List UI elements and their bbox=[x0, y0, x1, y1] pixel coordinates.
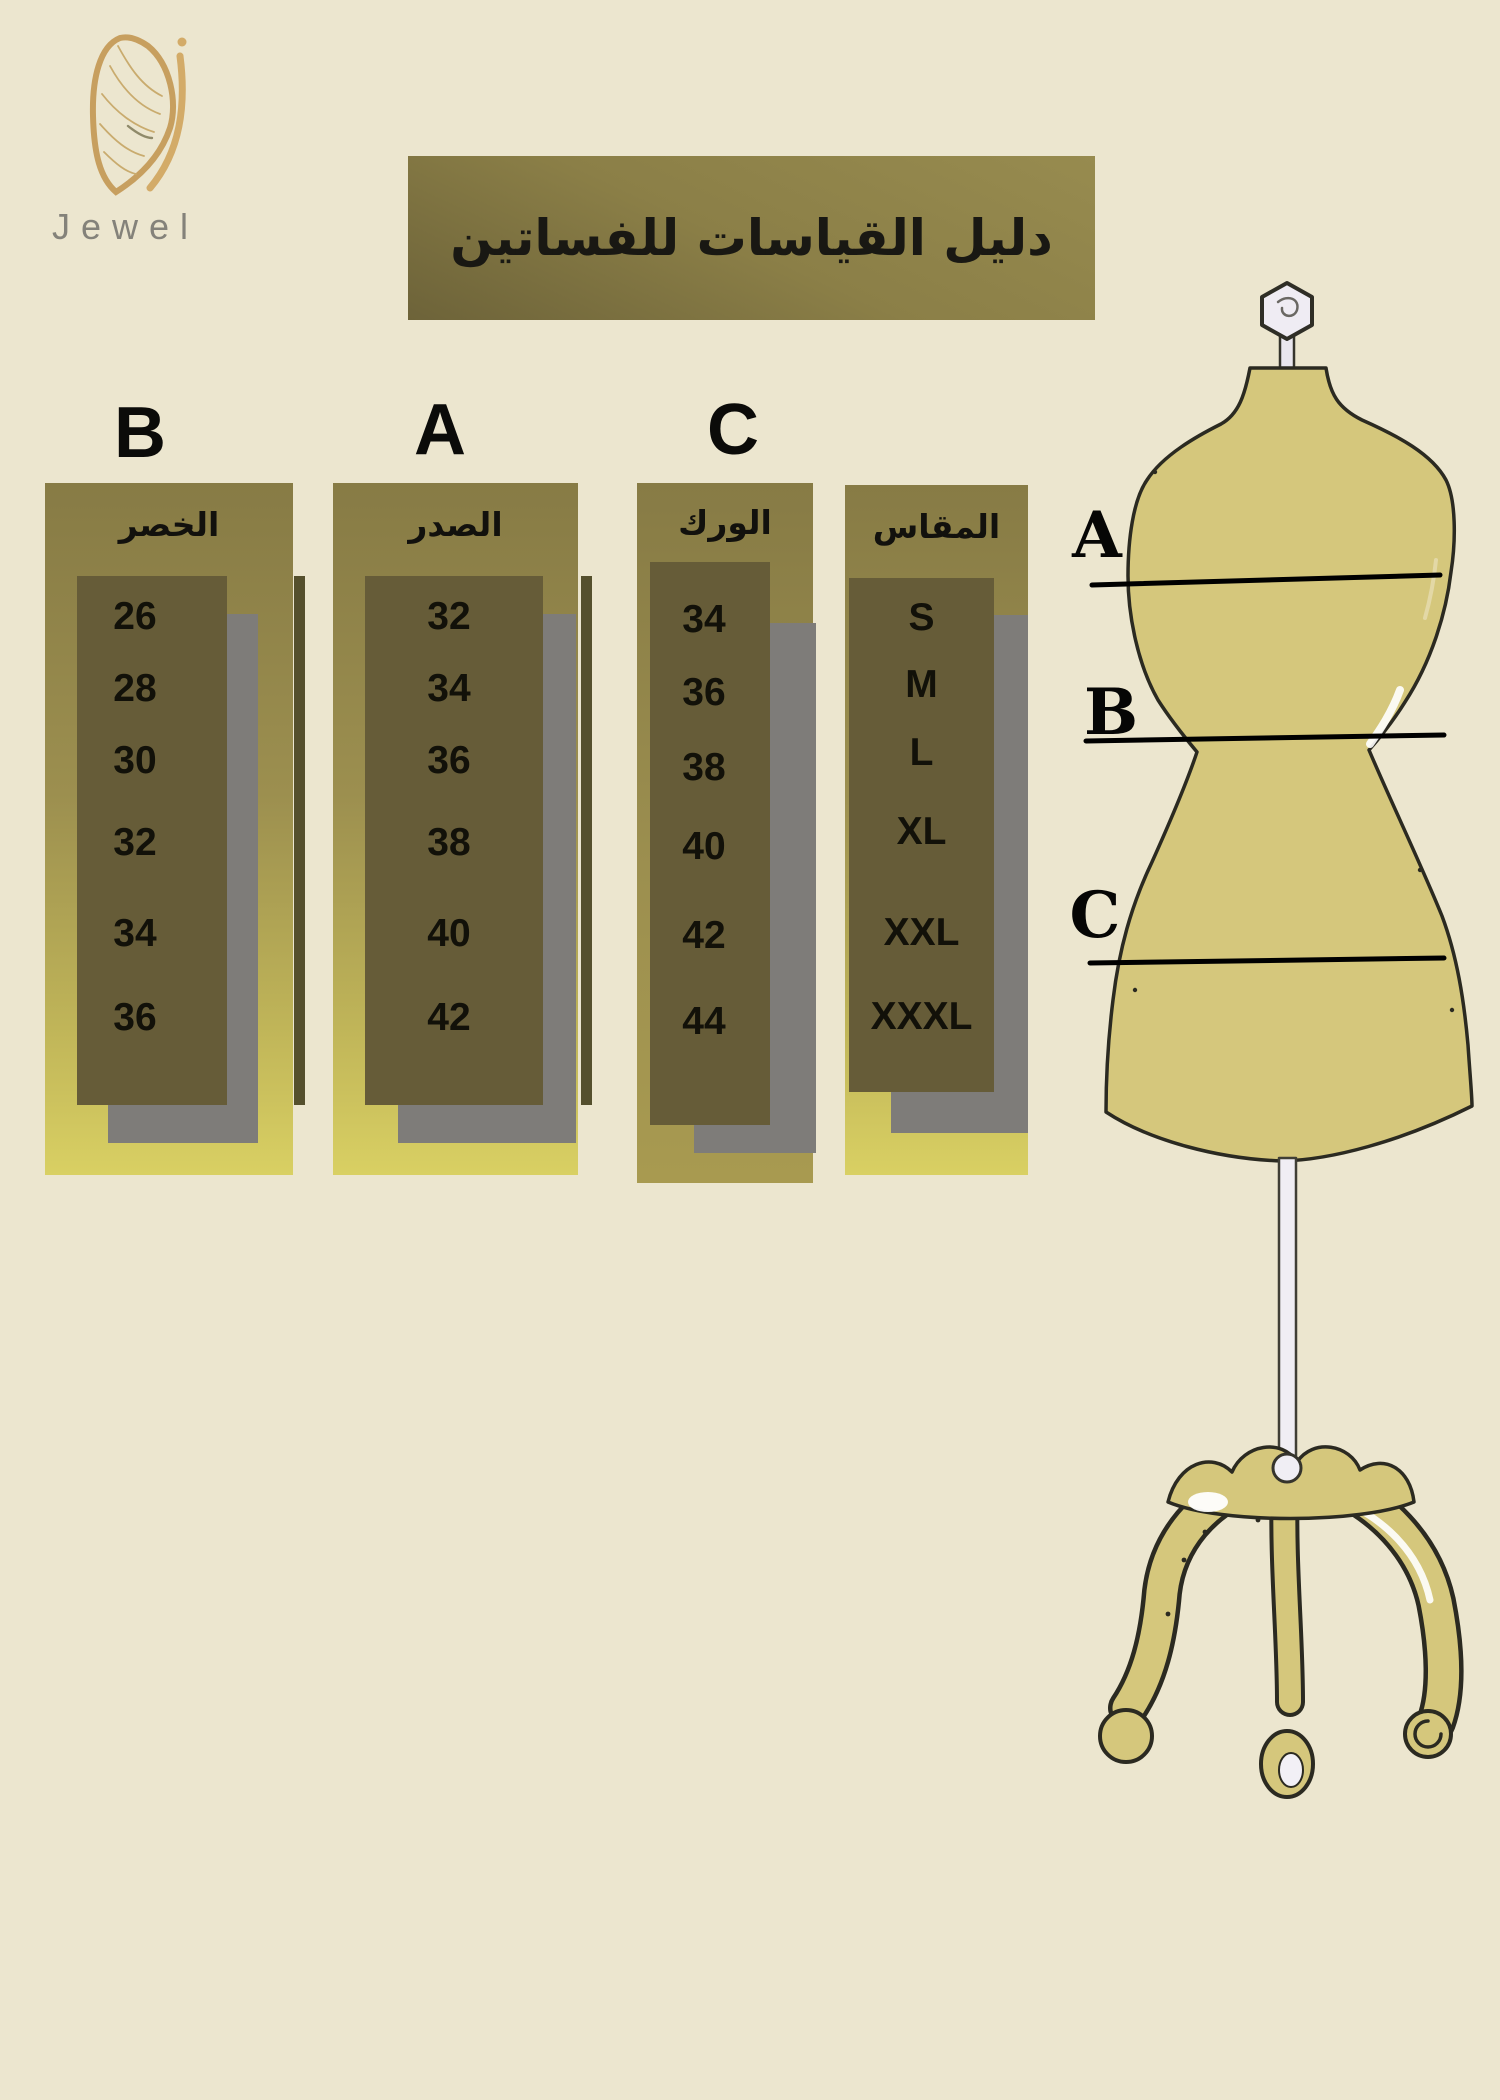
dress-form-illustration bbox=[1040, 260, 1500, 1820]
finial-knob-icon bbox=[1262, 283, 1312, 339]
label-bust-a: A bbox=[1042, 498, 1152, 573]
size-value: 34 bbox=[650, 598, 770, 642]
size-value: 40 bbox=[365, 912, 543, 956]
size-value: 38 bbox=[365, 821, 543, 865]
brand-name: Jewel bbox=[52, 206, 272, 248]
size-value: 34 bbox=[77, 912, 227, 956]
column-letter-b: B bbox=[80, 392, 200, 474]
bust-column-edge-shadow bbox=[581, 576, 592, 1105]
size-value: XXL bbox=[849, 911, 994, 955]
size-value: XXXL bbox=[849, 995, 994, 1039]
page-title: دليل القياسات للفساتين bbox=[450, 209, 1053, 267]
size-column-panel: المقاس SMLXLXXLXXXL bbox=[845, 485, 1028, 1175]
bust-values-list: 323436384042 bbox=[365, 576, 543, 1105]
dress-form-body bbox=[1106, 368, 1472, 1161]
hip-column-header: الورك bbox=[637, 503, 813, 542]
label-hip-c: C bbox=[1040, 878, 1150, 953]
title-banner: دليل القياسات للفساتين bbox=[408, 156, 1095, 320]
size-value: 30 bbox=[77, 739, 227, 783]
size-value: 42 bbox=[365, 996, 543, 1040]
size-value: 44 bbox=[650, 1000, 770, 1044]
size-value: 42 bbox=[650, 914, 770, 958]
hip-column-panel: الورك 343638404244 bbox=[637, 483, 813, 1183]
waist-values-list: 262830323436 bbox=[77, 576, 227, 1105]
waist-column-header: الخصر bbox=[45, 505, 293, 544]
size-column-header: المقاس bbox=[845, 507, 1028, 546]
size-guide-page: Jewel دليل القياسات للفساتين B A C الخصر… bbox=[0, 0, 1500, 2100]
hip-values-list: 343638404244 bbox=[650, 562, 770, 1125]
size-value: S bbox=[849, 596, 994, 640]
bust-column-panel: الصدر 323436384042 bbox=[333, 483, 578, 1175]
size-values-list: SMLXLXXLXXXL bbox=[849, 578, 994, 1092]
size-value: L bbox=[849, 731, 994, 775]
column-letter-c: C bbox=[673, 389, 793, 471]
size-value: M bbox=[849, 663, 994, 707]
waist-column-panel: الخصر 262830323436 bbox=[45, 483, 293, 1175]
size-value: 36 bbox=[650, 671, 770, 715]
bust-column-header: الصدر bbox=[333, 505, 578, 544]
size-value: 38 bbox=[650, 746, 770, 790]
label-waist-b: B bbox=[1056, 675, 1166, 750]
size-value: 36 bbox=[365, 739, 543, 783]
stand-pole bbox=[1279, 1158, 1296, 1470]
stand-tripod-base bbox=[1100, 1447, 1451, 1797]
waist-column-edge-shadow bbox=[294, 576, 305, 1105]
size-value: 40 bbox=[650, 825, 770, 869]
size-value: 26 bbox=[77, 595, 227, 639]
size-value: 32 bbox=[365, 595, 543, 639]
brand-logo-icon bbox=[58, 16, 208, 212]
size-value: 34 bbox=[365, 667, 543, 711]
size-value: 28 bbox=[77, 667, 227, 711]
size-value: XL bbox=[849, 810, 994, 854]
size-value: 32 bbox=[77, 821, 227, 865]
column-letter-a: A bbox=[380, 389, 500, 471]
stand-joint-ball bbox=[1273, 1454, 1301, 1482]
size-value: 36 bbox=[77, 996, 227, 1040]
